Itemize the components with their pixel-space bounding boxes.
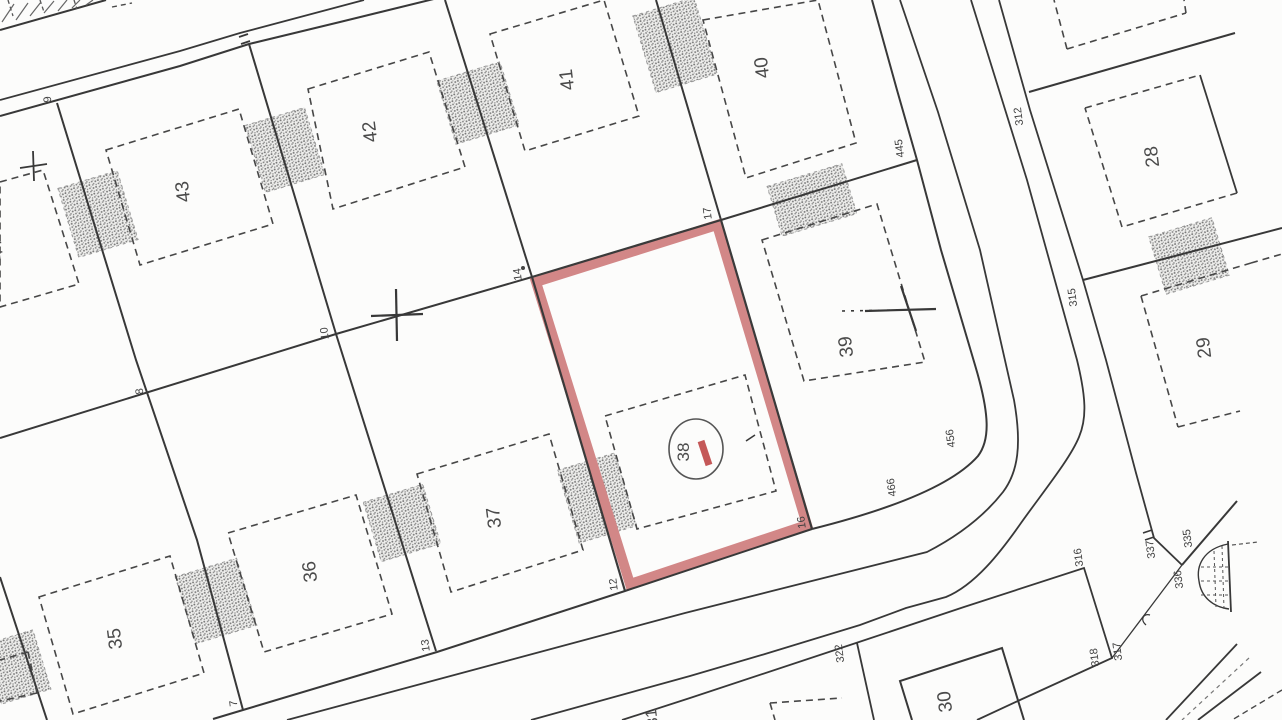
svg-text:37: 37 bbox=[483, 506, 506, 530]
svg-text:38: 38 bbox=[674, 443, 693, 462]
svg-text:322: 322 bbox=[833, 644, 847, 664]
svg-text:30: 30 bbox=[934, 690, 957, 714]
svg-text:35: 35 bbox=[104, 627, 127, 651]
svg-text:466: 466 bbox=[885, 478, 899, 498]
svg-text:17: 17 bbox=[701, 207, 714, 221]
svg-text:336: 336 bbox=[1172, 570, 1186, 590]
svg-text:13: 13 bbox=[419, 639, 432, 653]
svg-text:312: 312 bbox=[1012, 107, 1026, 127]
svg-text:29: 29 bbox=[1193, 336, 1216, 360]
svg-text:316: 316 bbox=[1072, 548, 1086, 568]
svg-text:318: 318 bbox=[1088, 648, 1102, 668]
svg-text:317: 317 bbox=[1111, 642, 1125, 662]
svg-text:39: 39 bbox=[835, 335, 858, 359]
svg-text:10: 10 bbox=[318, 327, 331, 341]
svg-text:40: 40 bbox=[751, 56, 774, 80]
svg-text:36: 36 bbox=[299, 560, 322, 584]
svg-text:12: 12 bbox=[607, 578, 620, 592]
svg-text:28: 28 bbox=[1141, 145, 1164, 169]
svg-text:43: 43 bbox=[172, 180, 195, 204]
svg-text:445: 445 bbox=[893, 139, 907, 159]
svg-text:335: 335 bbox=[1181, 529, 1195, 549]
svg-text:456: 456 bbox=[944, 429, 958, 449]
svg-text:14: 14 bbox=[511, 268, 524, 282]
svg-text:42: 42 bbox=[359, 120, 382, 144]
svg-text:315: 315 bbox=[1066, 288, 1080, 308]
svg-text:41: 41 bbox=[556, 68, 579, 92]
svg-text:16: 16 bbox=[795, 516, 808, 530]
svg-text:31: 31 bbox=[643, 708, 662, 720]
svg-text:337: 337 bbox=[1144, 540, 1158, 560]
